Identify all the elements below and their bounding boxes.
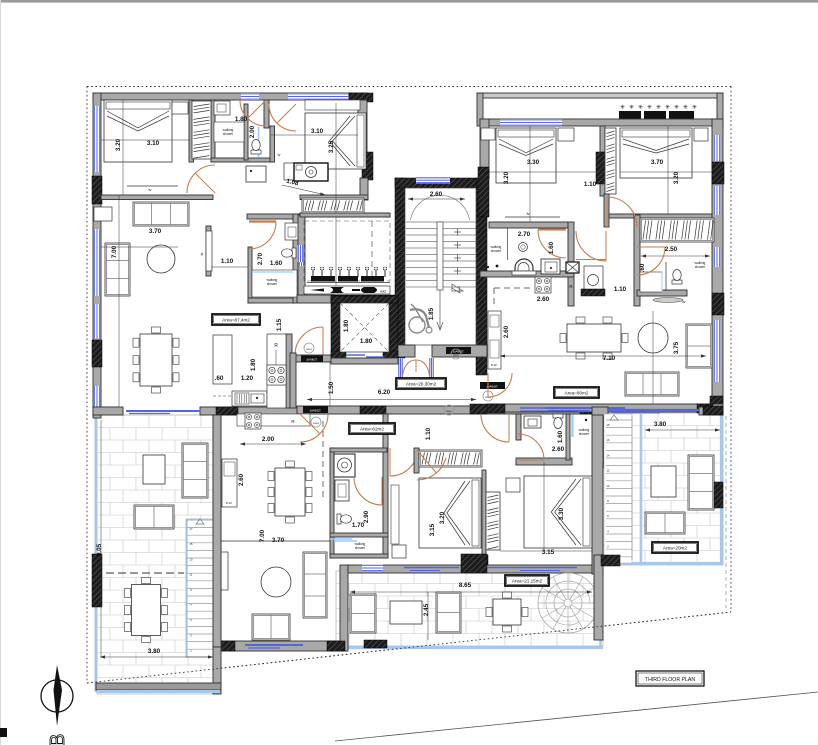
svg-text:shower: shower <box>267 282 278 286</box>
svg-text:Area=80m2: Area=80m2 <box>565 391 589 396</box>
svg-text:2.60: 2.60 <box>430 191 443 198</box>
svg-text:2.60: 2.60 <box>552 446 565 453</box>
svg-text:tv: tv <box>682 299 685 304</box>
svg-text:3.10: 3.10 <box>311 128 324 135</box>
svg-text:Area=87,4m2: Area=87,4m2 <box>222 318 250 323</box>
svg-text:3.20: 3.20 <box>673 171 680 184</box>
svg-text:✳: ✳ <box>665 104 670 111</box>
svg-text:1.80: 1.80 <box>235 116 248 123</box>
svg-text:FM04: FM04 <box>313 423 319 425</box>
svg-text:Area=62m2: Area=62m2 <box>360 427 384 432</box>
svg-text:3.70: 3.70 <box>272 537 285 544</box>
svg-text:1.20: 1.20 <box>241 375 254 382</box>
svg-text:1.60: 1.60 <box>270 260 283 267</box>
svg-text:tv: tv <box>148 187 151 192</box>
svg-text:✳: ✳ <box>674 104 679 111</box>
svg-text:2.60: 2.60 <box>238 473 245 486</box>
svg-text:FM03: FM03 <box>306 349 312 351</box>
svg-text:✳: ✳ <box>683 104 688 111</box>
svg-text:R: R <box>274 343 278 349</box>
svg-text:✳: ✳ <box>692 104 697 111</box>
svg-text:shower: shower <box>491 249 502 253</box>
svg-text:1.10: 1.10 <box>425 427 432 440</box>
svg-text:2.60: 2.60 <box>503 325 510 338</box>
svg-text:2.45: 2.45 <box>423 603 430 616</box>
svg-text:3.30: 3.30 <box>527 159 540 166</box>
svg-text:3.80: 3.80 <box>148 648 161 655</box>
svg-text:Area=20m2: Area=20m2 <box>663 546 687 551</box>
svg-text:2.50: 2.50 <box>665 246 678 253</box>
svg-text:3.80: 3.80 <box>654 421 667 428</box>
svg-text:1.60: 1.60 <box>548 241 555 254</box>
svg-text:✳: ✳ <box>629 104 634 111</box>
svg-text:✳: ✳ <box>647 104 652 111</box>
svg-text:3.10: 3.10 <box>147 140 160 147</box>
svg-text:2.90: 2.90 <box>363 510 370 523</box>
svg-text:shower: shower <box>355 546 366 550</box>
svg-text:ΔΙΑΦΩΤ.: ΔΙΑΦΩΤ. <box>307 358 318 362</box>
svg-text:3.15: 3.15 <box>429 523 436 536</box>
svg-text:7.00: 7.00 <box>111 245 118 258</box>
svg-text:1.50: 1.50 <box>328 381 335 394</box>
svg-text:3.20: 3.20 <box>503 171 510 184</box>
svg-text:B: B <box>47 734 69 745</box>
svg-text:.60: .60 <box>639 263 646 272</box>
svg-text:6.20: 6.20 <box>378 389 391 396</box>
svg-text:9.05: 9.05 <box>96 543 103 556</box>
svg-text:2.70: 2.70 <box>257 252 264 265</box>
svg-text:shower: shower <box>223 132 234 136</box>
svg-text:tv: tv <box>278 153 281 157</box>
svg-text:3.20: 3.20 <box>439 511 446 524</box>
svg-text:8.65: 8.65 <box>459 582 472 589</box>
svg-text:2.00: 2.00 <box>249 125 256 138</box>
svg-text:Area=20,30m2: Area=20,30m2 <box>406 382 437 387</box>
svg-text:FM01: FM01 <box>446 411 452 413</box>
svg-text:✳: ✳ <box>638 104 643 111</box>
svg-text:3.70: 3.70 <box>149 228 162 235</box>
svg-text:2.00: 2.00 <box>262 436 275 443</box>
svg-text:1.10: 1.10 <box>584 181 597 188</box>
svg-text:1.60: 1.60 <box>557 430 564 443</box>
svg-text:3.30: 3.30 <box>558 507 565 520</box>
svg-text:3.20: 3.20 <box>115 138 122 151</box>
svg-text:tv: tv <box>200 252 204 255</box>
svg-text:ΔΙΑΦΩΤ.: ΔΙΑΦΩΤ. <box>310 409 322 413</box>
svg-text:1.15: 1.15 <box>276 318 283 331</box>
svg-text:✳: ✳ <box>656 104 661 111</box>
svg-text:2.70: 2.70 <box>518 231 531 238</box>
svg-text:1.80: 1.80 <box>360 338 373 345</box>
svg-text:D.W.: D.W. <box>226 501 233 505</box>
svg-text:duct: duct <box>380 290 386 294</box>
svg-text:3.25: 3.25 <box>328 140 335 153</box>
svg-text:3.75: 3.75 <box>673 341 680 354</box>
svg-text:1.85: 1.85 <box>428 307 435 320</box>
svg-text:tv: tv <box>526 211 529 216</box>
svg-text:7.00: 7.00 <box>259 529 266 542</box>
svg-text:FM02: FM02 <box>453 355 459 357</box>
svg-text:1.10: 1.10 <box>221 258 234 265</box>
svg-text:1.80: 1.80 <box>343 319 350 332</box>
svg-text:D.W.: D.W. <box>491 363 498 367</box>
svg-text:2.60: 2.60 <box>537 296 550 303</box>
svg-text:Area=21,15m2: Area=21,15m2 <box>512 579 543 584</box>
svg-text:3.70: 3.70 <box>651 159 664 166</box>
svg-text:1.10: 1.10 <box>614 286 627 293</box>
svg-text:shower: shower <box>579 432 590 436</box>
svg-text:THIRD FLOOR PLAN: THIRD FLOOR PLAN <box>645 677 695 683</box>
svg-text:1.80: 1.80 <box>250 358 257 371</box>
svg-text:shower: shower <box>695 265 706 269</box>
svg-text:.60: .60 <box>215 375 224 382</box>
svg-text:✳: ✳ <box>620 104 625 111</box>
